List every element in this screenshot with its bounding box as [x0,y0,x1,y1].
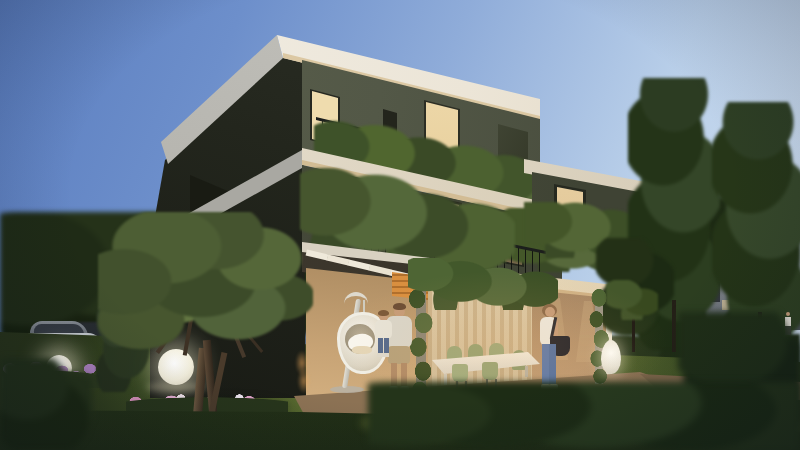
architectural-rendering-scene [0,0,800,450]
vignette-overlay [0,0,800,450]
